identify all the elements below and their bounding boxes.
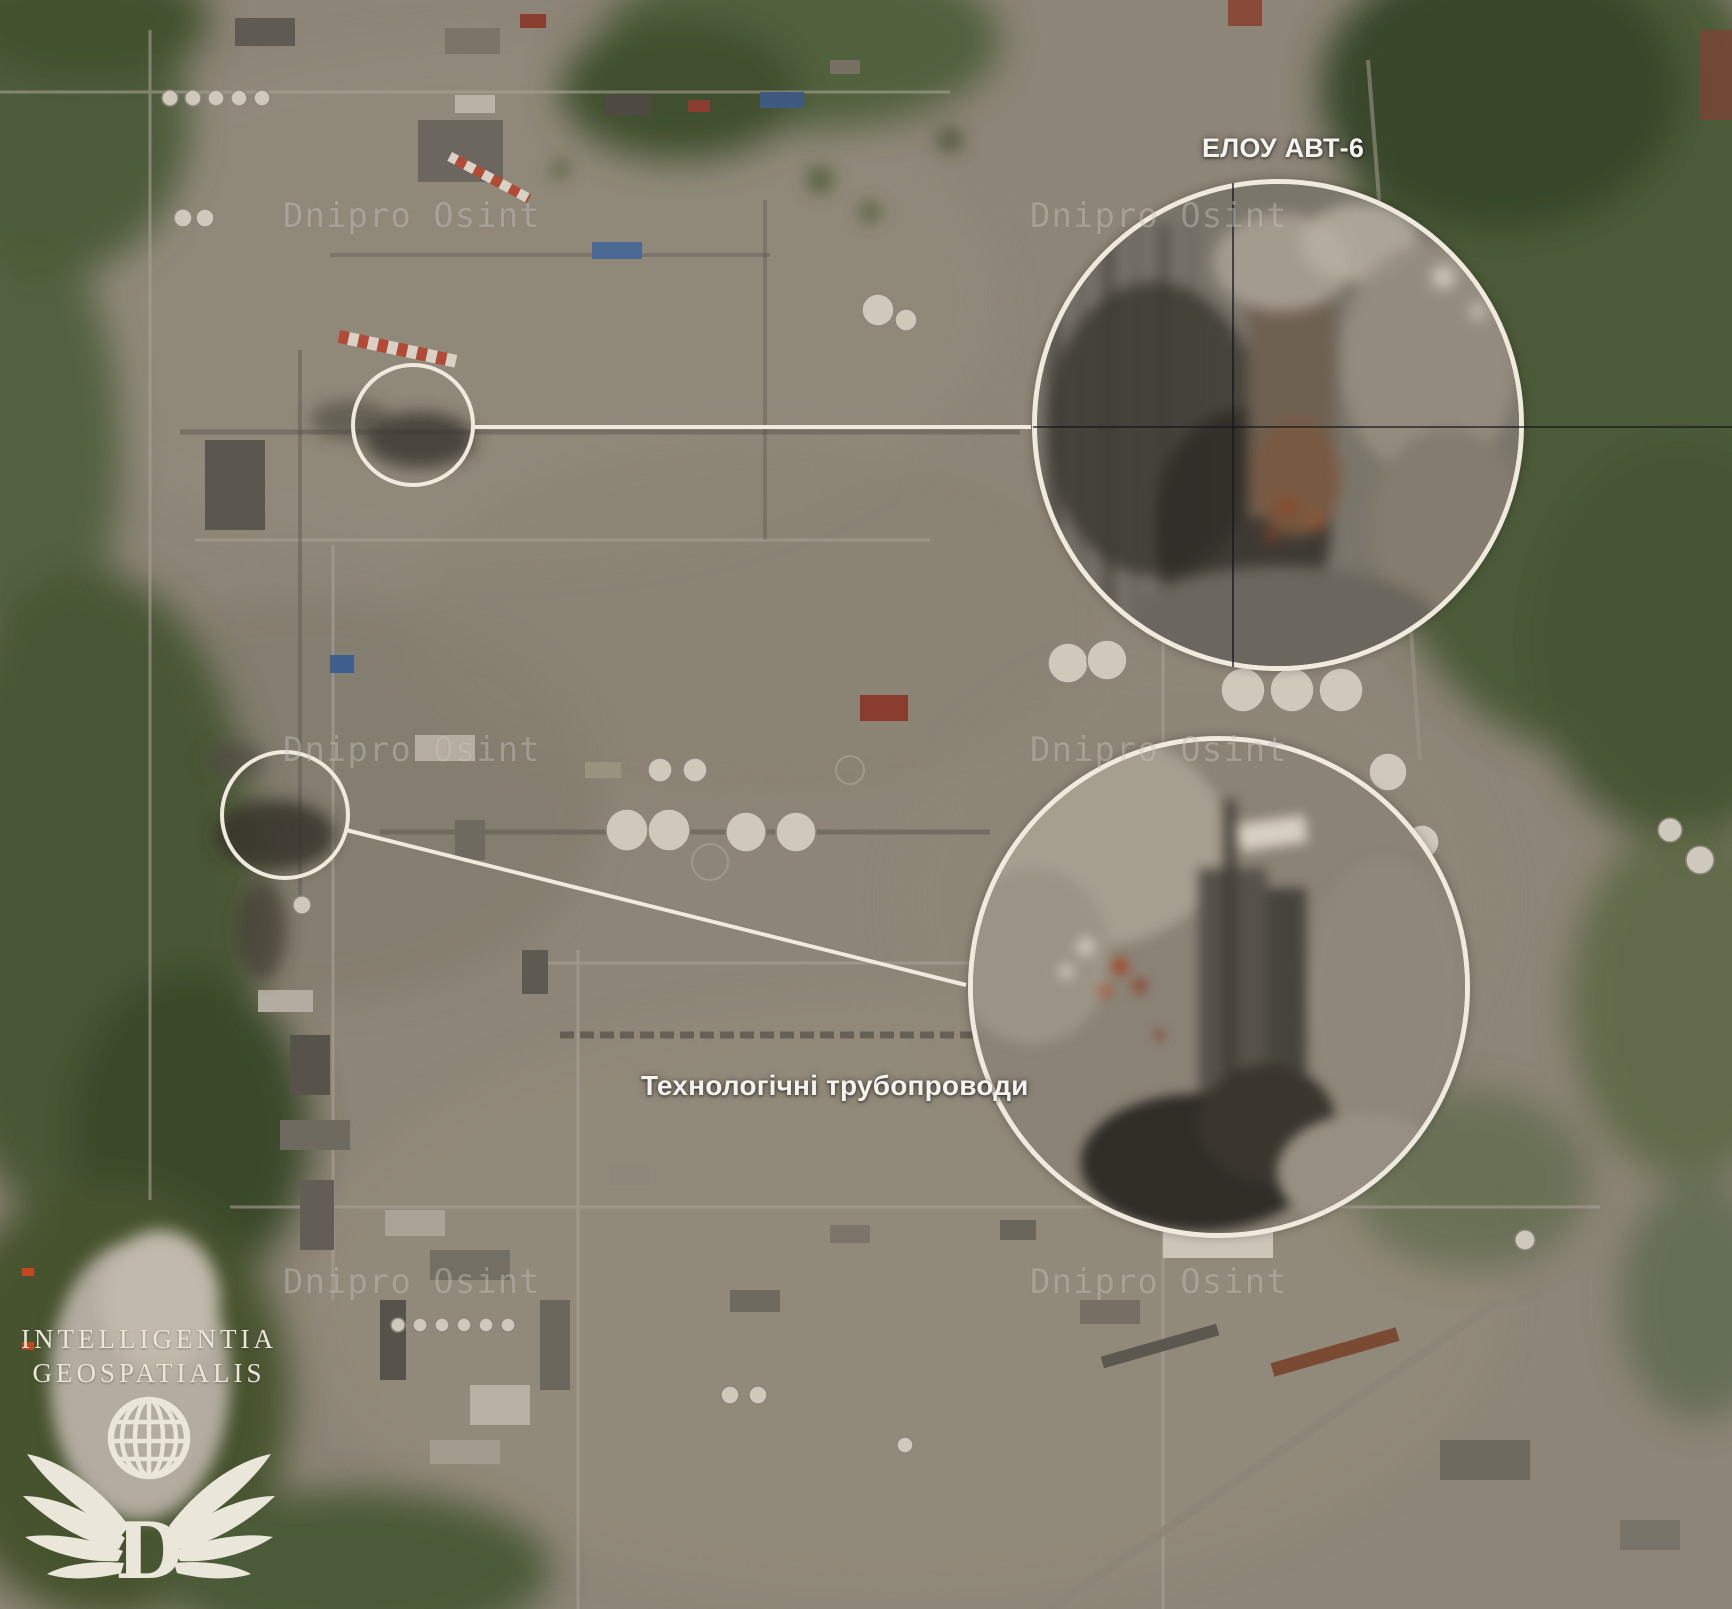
- watermark-text: Dnipro Osint: [1030, 1262, 1288, 1302]
- winged-globe-icon: D: [16, 1396, 282, 1586]
- watermark-text: Dnipro Osint: [283, 1262, 541, 1302]
- callout-label-pipelines: Технологічні трубопроводи: [641, 1070, 1029, 1102]
- watermark-text: Dnipro Osint: [1030, 196, 1288, 236]
- zoom-callout-1-imagery: [1037, 184, 1519, 666]
- agency-logo: INTELLIGENTIA GEOSPATIALIS: [16, 1322, 282, 1586]
- annotated-satellite-image: ЕЛОУ АВТ-6 Технологічні трубопроводи Dni…: [0, 0, 1732, 1609]
- logo-line-1: INTELLIGENTIA: [16, 1322, 282, 1356]
- zoom-callout-circle-1: [1032, 179, 1524, 671]
- logo-monogram: D: [115, 1506, 183, 1586]
- watermark-text: Dnipro Osint: [283, 730, 541, 770]
- zoom-callout-circle-2: [968, 736, 1470, 1238]
- watermark-text: Dnipro Osint: [1030, 730, 1288, 770]
- logo-line-2: GEOSPATIALIS: [16, 1356, 282, 1390]
- callout-label-elou-avt-6: ЕЛОУ АВТ-6: [1202, 133, 1364, 164]
- watermark-text: Dnipro Osint: [283, 196, 541, 236]
- globe-icon: [111, 1400, 187, 1476]
- zoom-callout-2-imagery: [973, 741, 1465, 1233]
